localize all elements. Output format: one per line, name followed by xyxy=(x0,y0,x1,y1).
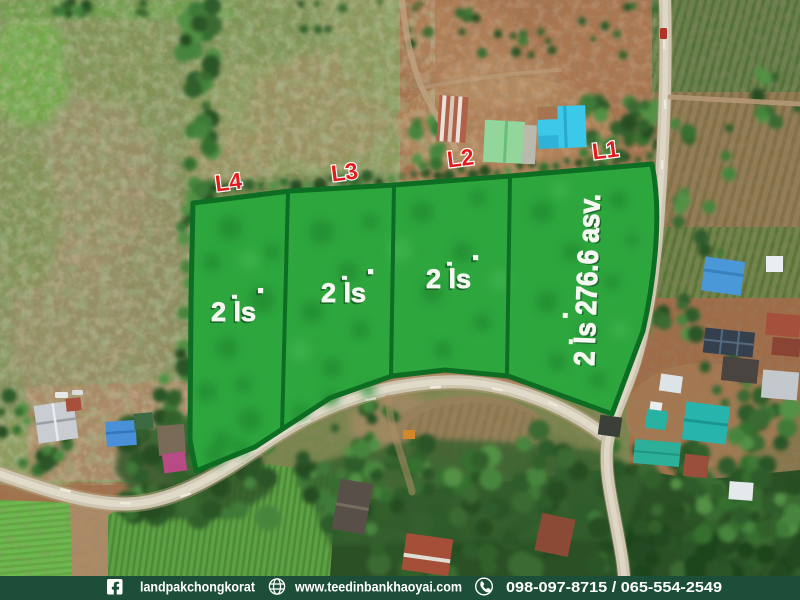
svg-text:landpakchongkorat: landpakchongkorat xyxy=(140,580,255,596)
svg-text:L2: L2 xyxy=(446,144,476,173)
svg-text:2 ls: 2 ls xyxy=(426,264,471,294)
svg-text:2 ls 276.6 asv.: 2 ls 276.6 asv. xyxy=(569,193,607,366)
svg-text:L4: L4 xyxy=(214,168,244,197)
svg-text:2 ls: 2 ls xyxy=(321,278,366,308)
svg-text:L3: L3 xyxy=(330,158,360,187)
svg-text:L1: L1 xyxy=(591,136,621,165)
svg-text:2 ls: 2 ls xyxy=(211,297,256,327)
svg-text:098-097-8715 / 065-554-2549: 098-097-8715 / 065-554-2549 xyxy=(506,580,722,596)
svg-text:www.teedinbankhaoyai.com: www.teedinbankhaoyai.com xyxy=(294,580,462,596)
